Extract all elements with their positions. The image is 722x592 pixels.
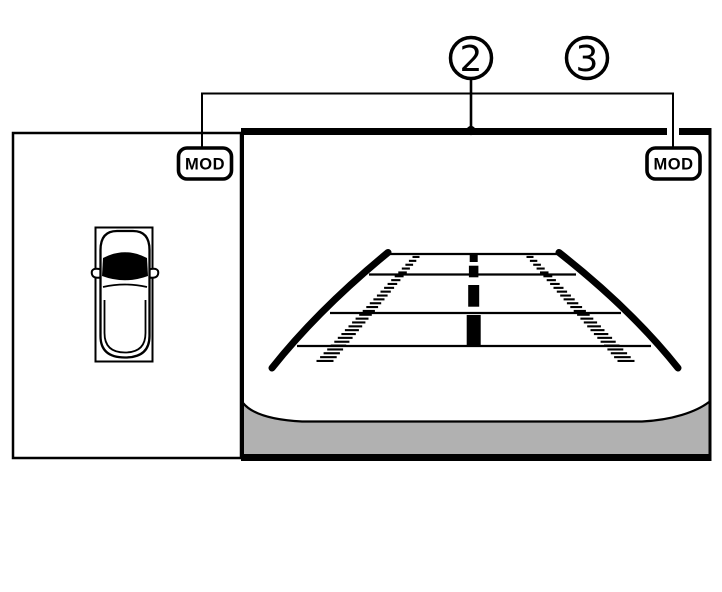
hatch-tick bbox=[574, 310, 586, 312]
hatch-tick bbox=[611, 352, 627, 354]
hatch-tick bbox=[413, 256, 420, 258]
hatch-tick bbox=[570, 306, 582, 308]
diagram-canvas: MOD bbox=[0, 0, 722, 592]
camera-border-left bbox=[241, 128, 244, 461]
hatch-tick bbox=[349, 325, 363, 327]
hatch-tick bbox=[388, 283, 398, 285]
mod-badge-left-label: MOD bbox=[185, 156, 225, 174]
hatch-tick bbox=[341, 333, 355, 335]
car-top-view-icon bbox=[92, 231, 159, 358]
camera-border-bottom bbox=[241, 454, 712, 461]
callout-2: 2 bbox=[451, 38, 492, 81]
hatch-tick bbox=[356, 318, 369, 320]
callout-3-number: 3 bbox=[576, 39, 599, 80]
hatch-tick bbox=[363, 310, 375, 312]
hatch-tick bbox=[597, 337, 612, 339]
center-dash bbox=[468, 285, 479, 307]
hatch-tick bbox=[618, 360, 635, 362]
hatch-tick bbox=[352, 321, 365, 323]
hatch-tick bbox=[381, 291, 391, 293]
hatch-tick bbox=[527, 256, 534, 258]
hatch-tick bbox=[409, 260, 416, 262]
hatch-tick bbox=[320, 356, 337, 358]
hatch-tick bbox=[331, 345, 347, 347]
hatch-tick bbox=[580, 318, 593, 320]
hatch-tick bbox=[557, 291, 567, 293]
camera-border-top-right-segment bbox=[679, 128, 712, 135]
hatch-tick bbox=[601, 341, 616, 343]
hatch-tick bbox=[584, 321, 597, 323]
hatch-tick bbox=[607, 348, 623, 350]
hatch-tick bbox=[587, 325, 601, 327]
hatch-tick bbox=[373, 298, 384, 300]
rear-view-monitor-diagram: MOD bbox=[0, 0, 722, 592]
hatch-tick bbox=[324, 352, 340, 354]
hatch-tick bbox=[317, 360, 334, 362]
hatch-tick bbox=[345, 329, 359, 331]
hatch-tick bbox=[398, 271, 407, 273]
mod-badge-left: MOD bbox=[179, 148, 232, 179]
hatch-tick bbox=[334, 341, 349, 343]
callout-2-number: 2 bbox=[460, 39, 483, 80]
hatch-tick bbox=[533, 264, 541, 266]
hatch-tick bbox=[338, 337, 353, 339]
hatch-tick bbox=[543, 275, 552, 277]
mod-badge-right: MOD bbox=[647, 148, 700, 179]
hatch-tick bbox=[359, 314, 372, 316]
center-dash bbox=[470, 253, 478, 262]
hatch-tick bbox=[384, 287, 394, 289]
hatch-tick bbox=[577, 314, 590, 316]
center-dash bbox=[469, 266, 479, 278]
hatch-tick bbox=[391, 279, 400, 281]
hatch-tick bbox=[540, 271, 549, 273]
hatch-tick bbox=[395, 275, 404, 277]
hatch-tick bbox=[402, 268, 410, 270]
hatch-tick bbox=[564, 298, 575, 300]
hatch-tick bbox=[366, 306, 378, 308]
hatch-tick bbox=[537, 268, 545, 270]
camera-panel: MOD bbox=[241, 128, 712, 461]
hatch-tick bbox=[604, 345, 620, 347]
hatch-tick bbox=[370, 302, 381, 304]
hatch-tick bbox=[554, 287, 564, 289]
hatch-tick bbox=[591, 329, 605, 331]
hatch-tick bbox=[327, 348, 343, 350]
hatch-tick bbox=[567, 302, 578, 304]
center-dash bbox=[467, 315, 481, 345]
callout-3: 3 bbox=[567, 38, 608, 81]
mod-badge-right-label: MOD bbox=[654, 156, 694, 174]
hatch-tick bbox=[560, 295, 571, 297]
camera-border-top-left-segment bbox=[241, 128, 667, 135]
hatch-tick bbox=[594, 333, 608, 335]
hatch-tick bbox=[547, 279, 556, 281]
car-windshield bbox=[102, 252, 148, 280]
hatch-tick bbox=[530, 260, 537, 262]
birds-eye-panel: MOD bbox=[13, 133, 241, 458]
callout-2-pointer-dot bbox=[466, 126, 475, 135]
hatch-tick bbox=[405, 264, 413, 266]
camera-border-right bbox=[709, 128, 712, 461]
hatch-tick bbox=[550, 283, 560, 285]
hatch-tick bbox=[377, 295, 388, 297]
car-body-outline bbox=[101, 231, 150, 358]
hatch-tick bbox=[614, 356, 631, 358]
